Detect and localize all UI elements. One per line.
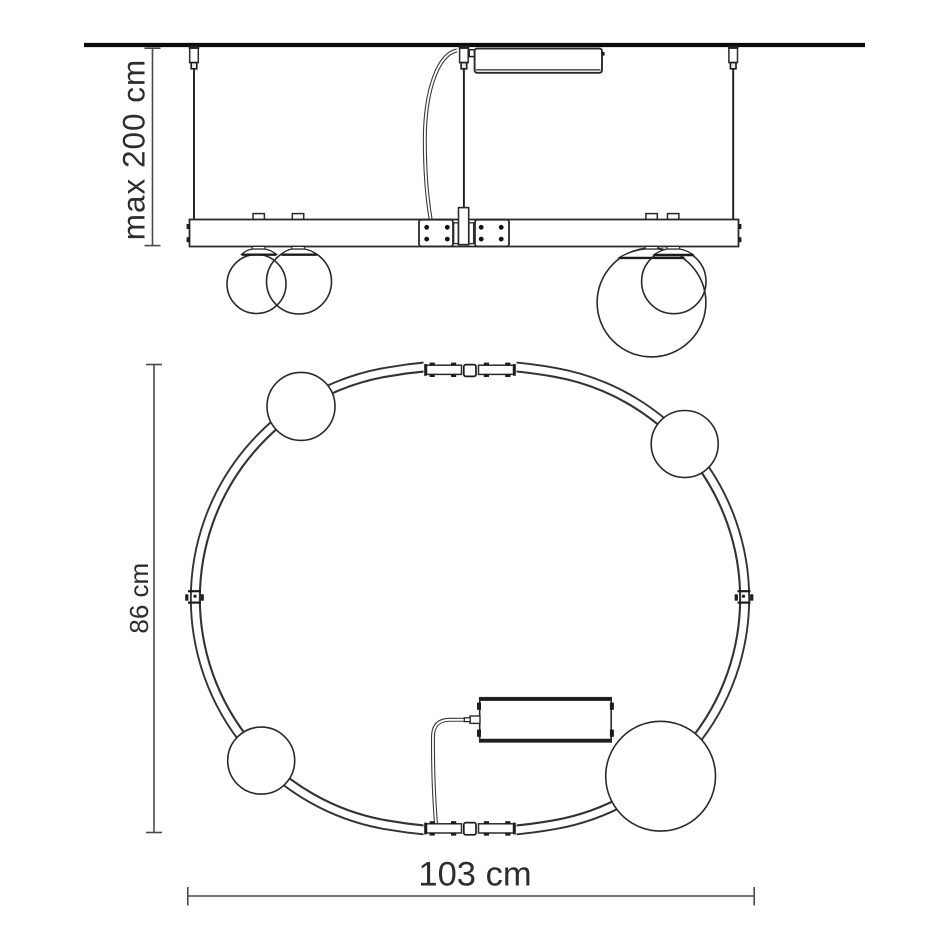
- svg-text:86 cm: 86 cm: [124, 563, 154, 634]
- svg-text:max 200 cm: max 200 cm: [116, 59, 152, 241]
- svg-text:103 cm: 103 cm: [418, 856, 531, 894]
